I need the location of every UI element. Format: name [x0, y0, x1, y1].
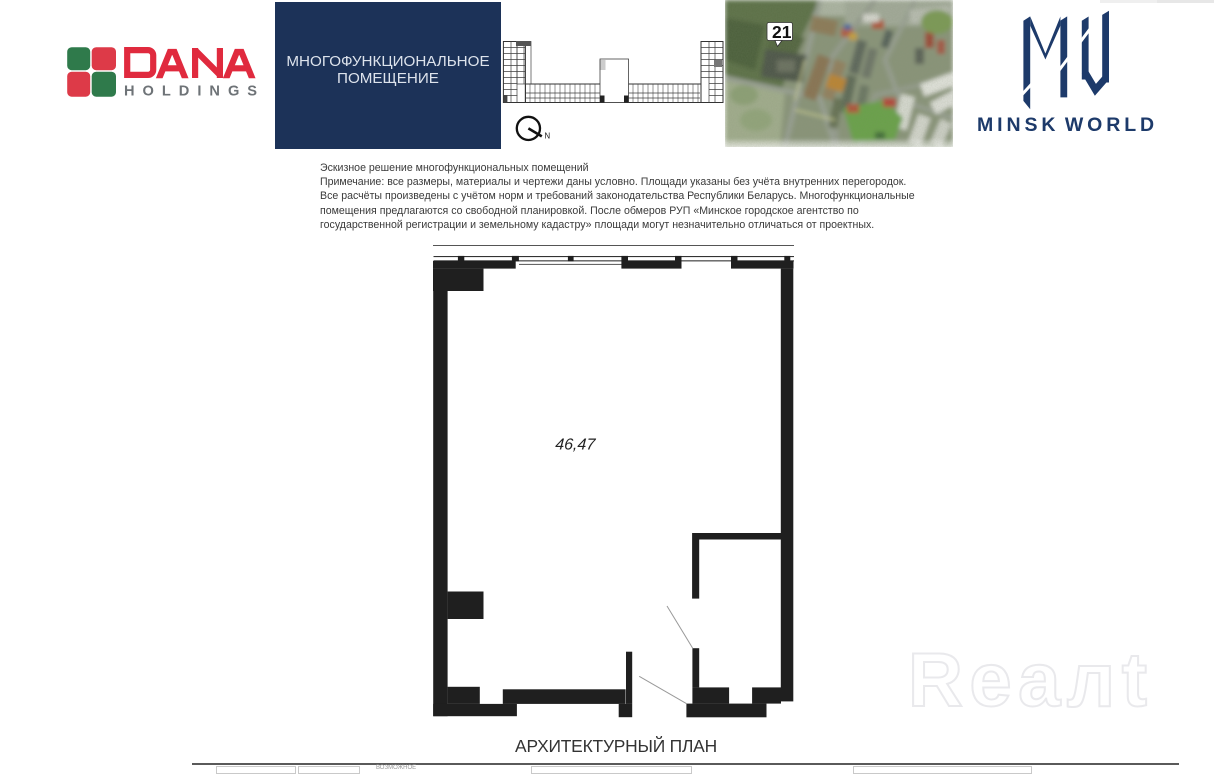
svg-text:HOLDINGS: HOLDINGS — [124, 84, 262, 97]
svg-text:21: 21 — [772, 22, 792, 42]
svg-text:N: N — [545, 132, 551, 141]
svg-text:46,47: 46,47 — [555, 437, 597, 454]
